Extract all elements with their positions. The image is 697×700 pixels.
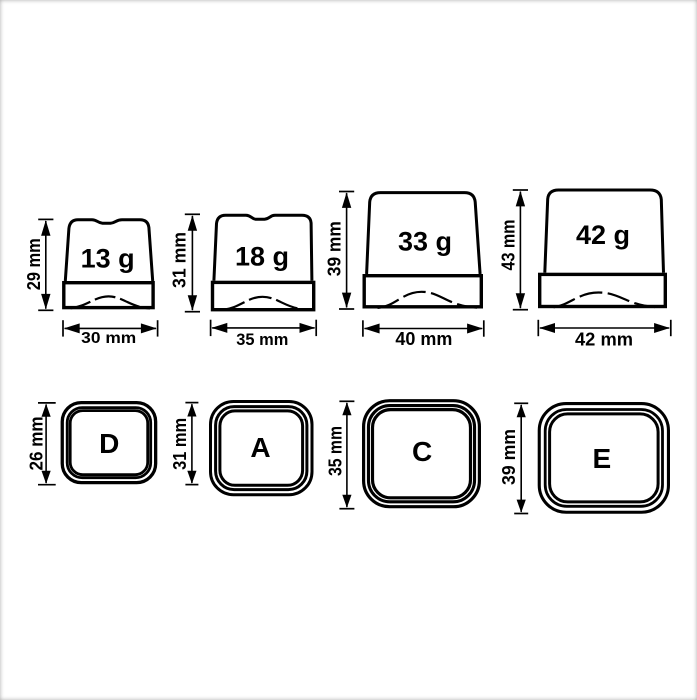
svg-text:42 g: 42 g: [576, 220, 630, 250]
svg-text:A: A: [250, 432, 270, 463]
svg-text:31 mm: 31 mm: [169, 418, 190, 470]
svg-text:31 mm: 31 mm: [168, 232, 189, 288]
svg-text:30 mm: 30 mm: [81, 330, 136, 347]
svg-text:40 mm: 40 mm: [395, 329, 452, 349]
svg-text:D: D: [99, 428, 119, 459]
svg-text:C: C: [412, 436, 432, 467]
svg-text:29 mm: 29 mm: [23, 238, 44, 290]
svg-text:13 g: 13 g: [81, 244, 135, 274]
svg-text:35 mm: 35 mm: [324, 426, 345, 476]
svg-text:33 g: 33 g: [398, 227, 452, 257]
svg-text:39 mm: 39 mm: [498, 429, 519, 485]
svg-text:35 mm: 35 mm: [236, 330, 288, 349]
svg-text:42 mm: 42 mm: [575, 330, 633, 350]
svg-text:43 mm: 43 mm: [497, 220, 518, 271]
svg-text:18 g: 18 g: [235, 242, 289, 272]
svg-text:E: E: [592, 443, 611, 474]
svg-text:39 mm: 39 mm: [324, 221, 345, 276]
svg-text:26 mm: 26 mm: [25, 417, 46, 471]
